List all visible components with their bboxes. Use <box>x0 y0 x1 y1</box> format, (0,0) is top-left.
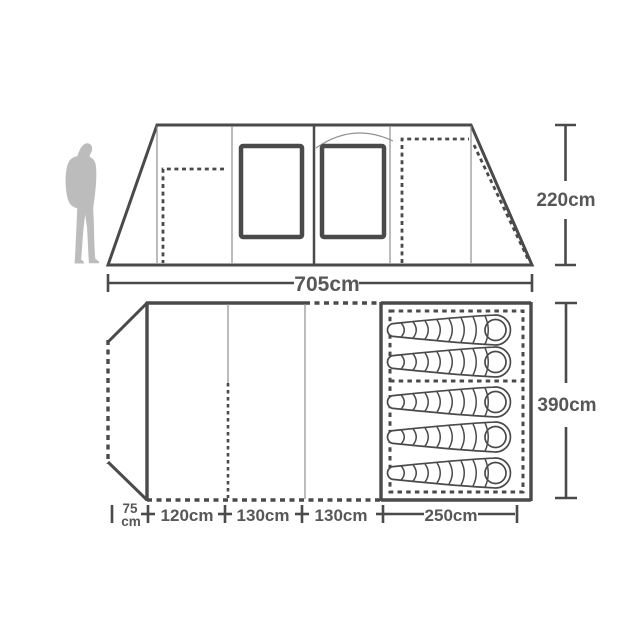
sleeping-bag-icon <box>388 387 511 417</box>
hiker-silhouette-icon <box>66 143 99 263</box>
tent-side-view <box>108 125 532 265</box>
sleeping-bag-icon <box>388 347 511 377</box>
sleeping-bags <box>388 315 511 488</box>
segment-tick <box>295 505 309 523</box>
overall-depth-label: 390cm <box>537 395 596 416</box>
segment-tick <box>141 505 155 523</box>
segment-label-250: 250cm <box>425 506 478 525</box>
porch-edge-line <box>108 462 147 500</box>
tent-floor-plan <box>108 302 531 501</box>
floor-depth-dimension: 390cm <box>537 303 596 498</box>
segment-label-130a: 130cm <box>237 506 290 525</box>
sleeping-bag-icon <box>388 315 511 345</box>
overall-height-label: 220cm <box>536 190 595 211</box>
sleeping-bag-icon <box>388 458 511 488</box>
porch-edge-line <box>108 303 147 342</box>
side-window <box>241 146 302 237</box>
side-width-dimension: 705cm <box>108 273 532 296</box>
segment-label-75-unit: cm <box>121 514 141 529</box>
segment-label-130b: 130cm <box>315 506 368 525</box>
sleeping-bag-icon <box>388 422 511 452</box>
diagram-svg: 705cm 220cm <box>0 0 638 638</box>
side-height-dimension: 220cm <box>536 125 595 265</box>
segment-label-120: 120cm <box>161 506 214 525</box>
overall-width-label: 705cm <box>294 273 359 296</box>
segment-tick <box>376 505 390 523</box>
floor-segments-dimension: 75 cm 120cm 130cm 130cm 250cm <box>112 501 517 529</box>
tent-dimension-diagram: 705cm 220cm <box>0 0 638 638</box>
side-window <box>322 146 384 237</box>
segment-tick <box>218 505 232 523</box>
